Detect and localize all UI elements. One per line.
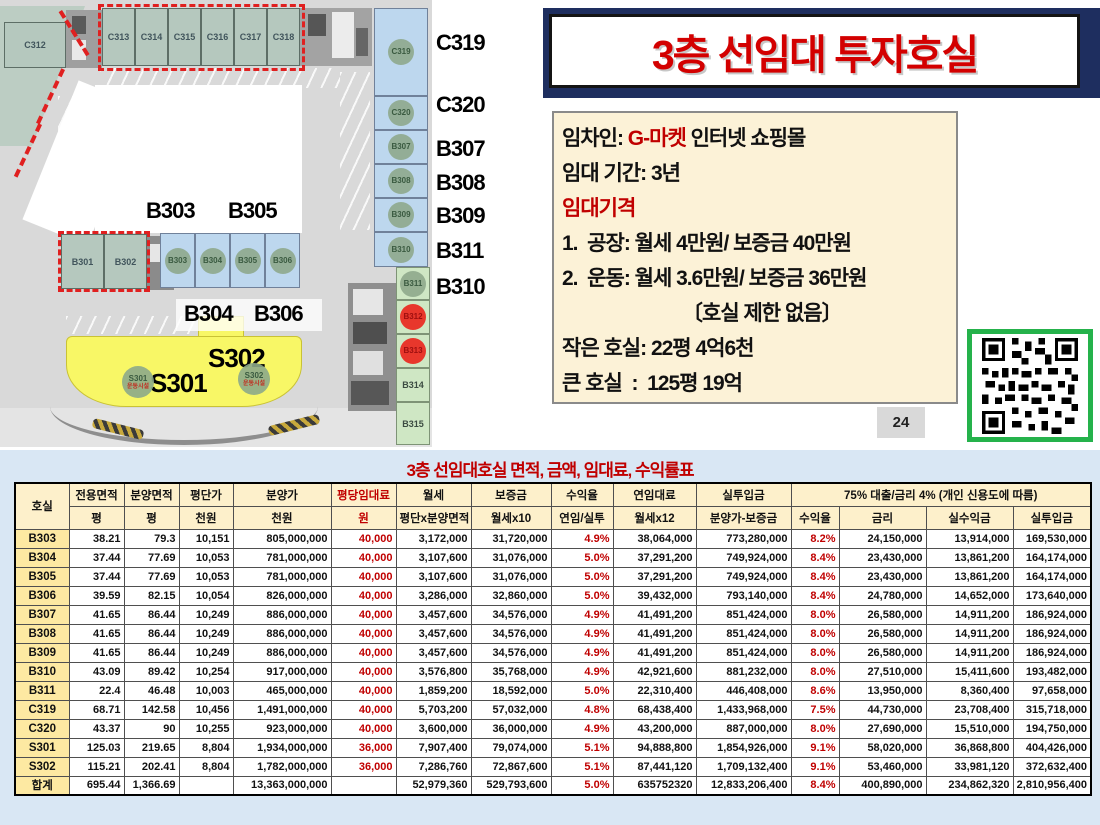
value-cell: 10,003 <box>179 681 233 700</box>
value-cell: 173,640,000 <box>1013 586 1091 605</box>
value-cell: 13,861,200 <box>926 548 1013 567</box>
value-cell: 38.21 <box>69 529 124 548</box>
unit-circle-s301: S301운동시설 <box>122 366 154 398</box>
table-row: B30537.4477.6910,053781,000,00040,0003,1… <box>15 567 1091 586</box>
parking-hatch <box>340 72 370 230</box>
value-cell: 37,291,200 <box>613 567 696 586</box>
value-cell: 57,032,000 <box>471 700 551 719</box>
value-cell: 404,426,000 <box>1013 738 1091 757</box>
value-cell: 219.65 <box>124 738 179 757</box>
col-loan-group: 75% 대출/금리 4% (개인 신용도에 따름) <box>791 483 1091 506</box>
value-cell: 8,804 <box>179 738 233 757</box>
room-cell: C319 <box>15 700 69 719</box>
sub-won: 원 <box>331 506 396 529</box>
unit-c317: C317 <box>234 8 267 66</box>
plan-label-c319: C319 <box>436 30 485 56</box>
s-unit-name: S302 <box>245 372 264 380</box>
value-cell: 14,652,000 <box>926 586 1013 605</box>
value-cell: 10,249 <box>179 605 233 624</box>
value-cell: 41,491,200 <box>613 605 696 624</box>
floor-plan-bg: C312 B303 B305 B304 B306 S302 S301 C313C… <box>0 0 432 447</box>
value-cell: 40,000 <box>331 700 396 719</box>
unit-b311: B311 <box>396 267 430 300</box>
value-cell: 39.59 <box>69 586 124 605</box>
table-row: S302115.21202.418,8041,782,000,00036,000… <box>15 757 1091 776</box>
plan-label-b303: B303 <box>146 198 195 224</box>
value-cell: 8.6% <box>791 681 839 700</box>
table-row: B30741.6586.4410,249886,000,00040,0003,4… <box>15 605 1091 624</box>
value-cell: 5.0% <box>551 776 613 795</box>
info-line-small-unit: 작은 호실: 22평 4억6천 <box>562 331 956 366</box>
unit-b302: B302 <box>104 234 147 289</box>
tenant-label: 임차인: <box>562 127 628 150</box>
value-cell: 2,810,956,400 <box>1013 776 1091 795</box>
plan-stair-detail <box>332 12 354 58</box>
value-cell: 193,482,000 <box>1013 662 1091 681</box>
s-unit-subtitle: 운동시설 <box>127 384 149 390</box>
info-line-tenant: 임차인: G-마켓 인터넷 쇼핑몰 <box>562 121 956 156</box>
value-cell: 4.9% <box>551 643 613 662</box>
value-cell: 24,150,000 <box>839 529 926 548</box>
plan-label-b309: B309 <box>436 203 485 229</box>
value-cell: 793,140,000 <box>696 586 791 605</box>
table-row: B30639.5982.1510,054826,000,00040,0003,2… <box>15 586 1091 605</box>
value-cell <box>331 776 396 795</box>
unit-b309: B309 <box>374 198 428 232</box>
value-cell: 43.37 <box>69 719 124 738</box>
unit-b305: B305 <box>230 233 265 288</box>
value-cell: 115.21 <box>69 757 124 776</box>
value-cell: 40,000 <box>331 719 396 738</box>
value-cell: 8.2% <box>791 529 839 548</box>
value-cell: 40,000 <box>331 624 396 643</box>
value-cell: 14,911,200 <box>926 605 1013 624</box>
value-cell: 86.44 <box>124 605 179 624</box>
value-cell: 43,200,000 <box>613 719 696 738</box>
value-cell: 22.4 <box>69 681 124 700</box>
table-row: B30841.6586.4410,249886,000,00040,0003,4… <box>15 624 1091 643</box>
sub-loan-netinv: 실투입금 <box>1013 506 1091 529</box>
unit-c313: C313 <box>102 8 135 66</box>
title-banner: 3층 선임대 투자호실 <box>543 8 1100 98</box>
value-cell: 44,730,000 <box>839 700 926 719</box>
value-cell: 5.0% <box>551 681 613 700</box>
plan-stair-detail <box>308 14 326 36</box>
plan-label-b311: B311 <box>436 238 483 264</box>
value-cell: 40,000 <box>331 605 396 624</box>
sub-netinv-formula: 분양가-보증금 <box>696 506 791 529</box>
sub-loan-interest: 금리 <box>839 506 926 529</box>
value-cell: 1,934,000,000 <box>233 738 331 757</box>
value-cell: 8.4% <box>791 567 839 586</box>
plan-stair-detail <box>356 28 368 56</box>
value-cell: 8,360,400 <box>926 681 1013 700</box>
value-cell: 186,924,000 <box>1013 624 1091 643</box>
value-cell: 22,310,400 <box>613 681 696 700</box>
value-cell: 781,000,000 <box>233 548 331 567</box>
col-sale-price: 분양가 <box>233 483 331 506</box>
value-cell: 13,950,000 <box>839 681 926 700</box>
value-cell: 18,592,000 <box>471 681 551 700</box>
value-cell: 31,720,000 <box>471 529 551 548</box>
table-row: B30338.2179.310,151805,000,00040,0003,17… <box>15 529 1091 548</box>
value-cell: 3,457,600 <box>396 643 471 662</box>
value-cell: 10,151 <box>179 529 233 548</box>
value-cell: 164,174,000 <box>1013 567 1091 586</box>
value-cell: 446,408,000 <box>696 681 791 700</box>
value-cell: 26,580,000 <box>839 605 926 624</box>
value-cell: 36,868,800 <box>926 738 1013 757</box>
value-cell: 5,703,200 <box>396 700 471 719</box>
unit-c315: C315 <box>168 8 201 66</box>
value-cell: 3,172,000 <box>396 529 471 548</box>
value-cell: 37.44 <box>69 567 124 586</box>
value-cell: 36,000 <box>331 738 396 757</box>
value-cell: 41.65 <box>69 605 124 624</box>
table-row: S301125.03219.658,8041,934,000,00036,000… <box>15 738 1091 757</box>
info-line-item2: 2. 운동: 월세 3.6만원/ 보증금 36만원 <box>562 261 956 296</box>
plan-label-b305: B305 <box>228 198 277 224</box>
plan-label-c320: C320 <box>436 92 485 118</box>
value-cell: 3,457,600 <box>396 605 471 624</box>
value-cell: 3,286,000 <box>396 586 471 605</box>
value-cell: 10,053 <box>179 567 233 586</box>
sub-pyeong2: 평 <box>124 506 179 529</box>
floor-plan: C312 B303 B305 B304 B306 S302 S301 C313C… <box>0 0 540 447</box>
value-cell: 40,000 <box>331 662 396 681</box>
value-cell: 5.1% <box>551 757 613 776</box>
value-cell: 36,000,000 <box>471 719 551 738</box>
value-cell: 26,580,000 <box>839 643 926 662</box>
value-cell: 8,804 <box>179 757 233 776</box>
value-cell: 33,981,120 <box>926 757 1013 776</box>
value-cell: 529,793,600 <box>471 776 551 795</box>
value-cell: 3,107,600 <box>396 548 471 567</box>
sub-pyeong: 평 <box>69 506 124 529</box>
value-cell: 12,833,206,400 <box>696 776 791 795</box>
value-cell: 8.4% <box>791 586 839 605</box>
col-supply-area: 분양면적 <box>124 483 179 506</box>
value-cell: 23,708,400 <box>926 700 1013 719</box>
unit-circle-c319: C319 <box>388 39 414 65</box>
value-cell: 9.1% <box>791 757 839 776</box>
value-cell: 31,076,000 <box>471 548 551 567</box>
unit-circle-b313: B313 <box>400 338 426 364</box>
value-cell: 1,366.69 <box>124 776 179 795</box>
plan-label-b306: B306 <box>254 301 303 327</box>
value-cell <box>179 776 233 795</box>
value-cell: 4.9% <box>551 624 613 643</box>
unit-circle-b305: B305 <box>235 248 261 274</box>
value-cell: 14,911,200 <box>926 643 1013 662</box>
room-cell: C320 <box>15 719 69 738</box>
value-cell: 8.0% <box>791 624 839 643</box>
value-cell: 53,460,000 <box>839 757 926 776</box>
value-cell: 13,861,200 <box>926 567 1013 586</box>
unit-b307: B307 <box>374 130 428 164</box>
plan-label-b308: B308 <box>436 170 485 196</box>
value-cell: 8.4% <box>791 548 839 567</box>
value-cell: 13,914,000 <box>926 529 1013 548</box>
value-cell: 35,768,000 <box>471 662 551 681</box>
value-cell: 3,457,600 <box>396 624 471 643</box>
unit-b303: B303 <box>160 233 195 288</box>
parking-hatch <box>58 96 92 226</box>
value-cell: 87,441,120 <box>613 757 696 776</box>
info-line-term: 임대 기간: 3년 <box>562 156 956 191</box>
value-cell: 164,174,000 <box>1013 548 1091 567</box>
value-cell: 43.09 <box>69 662 124 681</box>
value-cell: 23,430,000 <box>839 567 926 586</box>
unit-circle-b307: B307 <box>388 134 414 160</box>
value-cell: 34,576,000 <box>471 605 551 624</box>
table-row: C31968.71142.5810,4561,491,000,00040,000… <box>15 700 1091 719</box>
value-cell: 400,890,000 <box>839 776 926 795</box>
table-row: B30941.6586.4410,249886,000,00040,0003,4… <box>15 643 1091 662</box>
value-cell: 125.03 <box>69 738 124 757</box>
value-cell: 1,491,000,000 <box>233 700 331 719</box>
plan-label-b310: B310 <box>436 274 485 300</box>
value-cell: 10,255 <box>179 719 233 738</box>
unit-circle-b309: B309 <box>388 202 414 228</box>
info-line-price-head: 임대기격 <box>562 191 956 226</box>
value-cell: 40,000 <box>331 548 396 567</box>
info-line-note: 〔호실 제한 없음〕 <box>562 296 956 331</box>
col-room: 호실 <box>15 483 69 529</box>
unit-b315: B315 <box>396 402 430 445</box>
s-unit-subtitle: 운동시설 <box>243 381 265 387</box>
table-row: 합계695.441,366.6913,363,000,00052,979,360… <box>15 776 1091 795</box>
unit-b312: B312 <box>396 300 430 334</box>
unit-table: 호실 전용면적 분양면적 평단가 분양가 평당임대료 월세 보증금 수익율 연임… <box>14 482 1092 796</box>
table-row: B31122.446.4810,003465,000,00040,0001,85… <box>15 681 1091 700</box>
value-cell: 315,718,000 <box>1013 700 1091 719</box>
value-cell: 8.0% <box>791 719 839 738</box>
unit-circle-b310: B310 <box>388 237 414 263</box>
value-cell: 142.58 <box>124 700 179 719</box>
value-cell: 7,286,760 <box>396 757 471 776</box>
value-cell: 234,862,320 <box>926 776 1013 795</box>
value-cell: 1,859,200 <box>396 681 471 700</box>
qr-pattern <box>980 338 1080 434</box>
value-cell: 41.65 <box>69 624 124 643</box>
value-cell: 881,232,000 <box>696 662 791 681</box>
col-annual-rent: 연임대료 <box>613 483 696 506</box>
value-cell: 46.48 <box>124 681 179 700</box>
parking-hatch <box>100 68 340 88</box>
value-cell: 7.5% <box>791 700 839 719</box>
value-cell: 3,107,600 <box>396 567 471 586</box>
value-cell: 40,000 <box>331 586 396 605</box>
value-cell: 97,658,000 <box>1013 681 1091 700</box>
table-row: B31043.0989.4210,254917,000,00040,0003,5… <box>15 662 1091 681</box>
value-cell: 465,000,000 <box>233 681 331 700</box>
page-number: 24 <box>877 407 925 438</box>
value-cell: 41.65 <box>69 643 124 662</box>
value-cell: 372,632,400 <box>1013 757 1091 776</box>
value-cell: 3,600,000 <box>396 719 471 738</box>
value-cell: 749,924,000 <box>696 548 791 567</box>
value-cell: 1,433,968,000 <box>696 700 791 719</box>
value-cell: 10,456 <box>179 700 233 719</box>
sub-thousand-won: 천원 <box>179 506 233 529</box>
title-box: 3층 선임대 투자호실 <box>549 14 1080 88</box>
value-cell: 72,867,600 <box>471 757 551 776</box>
unit-c312: C312 <box>4 22 66 68</box>
unit-circle-b311: B311 <box>400 271 426 297</box>
unit-c320: C320 <box>374 96 428 130</box>
value-cell: 10,053 <box>179 548 233 567</box>
value-cell: 15,510,000 <box>926 719 1013 738</box>
col-deposit: 보증금 <box>471 483 551 506</box>
sub-yield-formula: 연임/실투 <box>551 506 613 529</box>
value-cell: 68.71 <box>69 700 124 719</box>
value-cell: 851,424,000 <box>696 605 791 624</box>
room-cell: B310 <box>15 662 69 681</box>
value-cell: 695.44 <box>69 776 124 795</box>
value-cell: 5.0% <box>551 586 613 605</box>
value-cell: 40,000 <box>331 567 396 586</box>
value-cell: 15,411,600 <box>926 662 1013 681</box>
room-cell: B309 <box>15 643 69 662</box>
value-cell: 77.69 <box>124 548 179 567</box>
value-cell: 887,000,000 <box>696 719 791 738</box>
value-cell: 749,924,000 <box>696 567 791 586</box>
room-cell: B305 <box>15 567 69 586</box>
page-title: 3층 선임대 투자호실 <box>652 21 977 81</box>
value-cell: 36,000 <box>331 757 396 776</box>
value-cell: 886,000,000 <box>233 643 331 662</box>
value-cell: 917,000,000 <box>233 662 331 681</box>
value-cell: 23,430,000 <box>839 548 926 567</box>
value-cell: 781,000,000 <box>233 567 331 586</box>
unit-label: C312 <box>24 40 46 50</box>
value-cell: 10,054 <box>179 586 233 605</box>
value-cell: 41,491,200 <box>613 624 696 643</box>
value-cell: 7,907,400 <box>396 738 471 757</box>
room-cell: B303 <box>15 529 69 548</box>
info-box: 임차인: G-마켓 인터넷 쇼핑몰 임대 기간: 3년 임대기격 1. 공장: … <box>552 111 958 404</box>
unit-circle-c320: C320 <box>388 100 414 126</box>
value-cell: 8.4% <box>791 776 839 795</box>
unit-circle-b308: B308 <box>388 168 414 194</box>
value-cell: 37.44 <box>69 548 124 567</box>
value-cell: 94,888,800 <box>613 738 696 757</box>
plan-elevator-detail <box>353 351 383 375</box>
value-cell: 923,000,000 <box>233 719 331 738</box>
qr-code <box>967 329 1093 442</box>
plan-elevator-detail <box>353 289 383 315</box>
unit-circle-s302: S302운동시설 <box>238 363 270 395</box>
value-cell: 3,576,800 <box>396 662 471 681</box>
sub-deposit-formula: 월세x10 <box>471 506 551 529</box>
value-cell: 40,000 <box>331 643 396 662</box>
value-cell: 1,854,926,000 <box>696 738 791 757</box>
value-cell: 40,000 <box>331 681 396 700</box>
value-cell: 79.3 <box>124 529 179 548</box>
table-header: 호실 전용면적 분양면적 평단가 분양가 평당임대료 월세 보증금 수익율 연임… <box>15 483 1091 529</box>
value-cell: 4.9% <box>551 605 613 624</box>
col-price-per-pyeong: 평단가 <box>179 483 233 506</box>
room-cell: B304 <box>15 548 69 567</box>
sub-annual-formula: 월세x12 <box>613 506 696 529</box>
unit-c318: C318 <box>267 8 300 66</box>
plan-label-b307: B307 <box>436 136 485 162</box>
value-cell: 27,690,000 <box>839 719 926 738</box>
value-cell: 851,424,000 <box>696 643 791 662</box>
value-cell: 86.44 <box>124 643 179 662</box>
col-net-investment: 실투입금 <box>696 483 791 506</box>
col-yield: 수익율 <box>551 483 613 506</box>
plan-elevator-detail <box>351 381 389 405</box>
value-cell: 5.1% <box>551 738 613 757</box>
value-cell: 5.0% <box>551 567 613 586</box>
value-cell: 31,076,000 <box>471 567 551 586</box>
col-monthly-rent: 월세 <box>396 483 471 506</box>
value-cell: 86.44 <box>124 624 179 643</box>
sub-thousand-won2: 천원 <box>233 506 331 529</box>
unit-b313: B313 <box>396 334 430 368</box>
sub-loan-netprofit: 실수익금 <box>926 506 1013 529</box>
sub-loan-yield: 수익율 <box>791 506 839 529</box>
room-cell: B311 <box>15 681 69 700</box>
value-cell: 14,911,200 <box>926 624 1013 643</box>
value-cell: 24,780,000 <box>839 586 926 605</box>
tenant-name: G-마켓 <box>628 127 686 150</box>
value-cell: 26,580,000 <box>839 624 926 643</box>
value-cell: 8.0% <box>791 605 839 624</box>
unit-c314: C314 <box>135 8 168 66</box>
value-cell: 5.0% <box>551 548 613 567</box>
unit-c319: C319 <box>374 8 428 96</box>
room-cell: 합계 <box>15 776 69 795</box>
value-cell: 77.69 <box>124 567 179 586</box>
value-cell: 169,530,000 <box>1013 529 1091 548</box>
table-row: C32043.379010,255923,000,00040,0003,600,… <box>15 719 1091 738</box>
unit-b308: B308 <box>374 164 428 198</box>
value-cell: 38,064,000 <box>613 529 696 548</box>
value-cell: 41,491,200 <box>613 643 696 662</box>
value-cell: 4.9% <box>551 662 613 681</box>
value-cell: 851,424,000 <box>696 624 791 643</box>
plan-label-s301: S301 <box>150 368 207 399</box>
unit-c316: C316 <box>201 8 234 66</box>
col-exclusive-area: 전용면적 <box>69 483 124 506</box>
table-section: 3층 선임대호실 면적, 금액, 임대료, 수익률표 호실 전용면적 분양면적 … <box>0 450 1100 825</box>
room-cell: B306 <box>15 586 69 605</box>
room-cell: S302 <box>15 757 69 776</box>
table-row: B30437.4477.6910,053781,000,00040,0003,1… <box>15 548 1091 567</box>
unit-b301: B301 <box>61 234 104 289</box>
value-cell: 79,074,000 <box>471 738 551 757</box>
value-cell: 186,924,000 <box>1013 643 1091 662</box>
value-cell: 4.8% <box>551 700 613 719</box>
slide: C312 B303 B305 B304 B306 S302 S301 C313C… <box>0 0 1100 825</box>
value-cell: 10,249 <box>179 624 233 643</box>
sub-rent-formula: 평단x분양면적 <box>396 506 471 529</box>
value-cell: 1,782,000,000 <box>233 757 331 776</box>
plan-elevator-detail <box>353 322 387 344</box>
value-cell: 8.0% <box>791 662 839 681</box>
value-cell: 89.42 <box>124 662 179 681</box>
unit-circle-b304: B304 <box>200 248 226 274</box>
unit-b306: B306 <box>265 233 300 288</box>
value-cell: 4.9% <box>551 719 613 738</box>
unit-circle-b303: B303 <box>165 248 191 274</box>
value-cell: 8.0% <box>791 643 839 662</box>
value-cell: 27,510,000 <box>839 662 926 681</box>
value-cell: 40,000 <box>331 529 396 548</box>
